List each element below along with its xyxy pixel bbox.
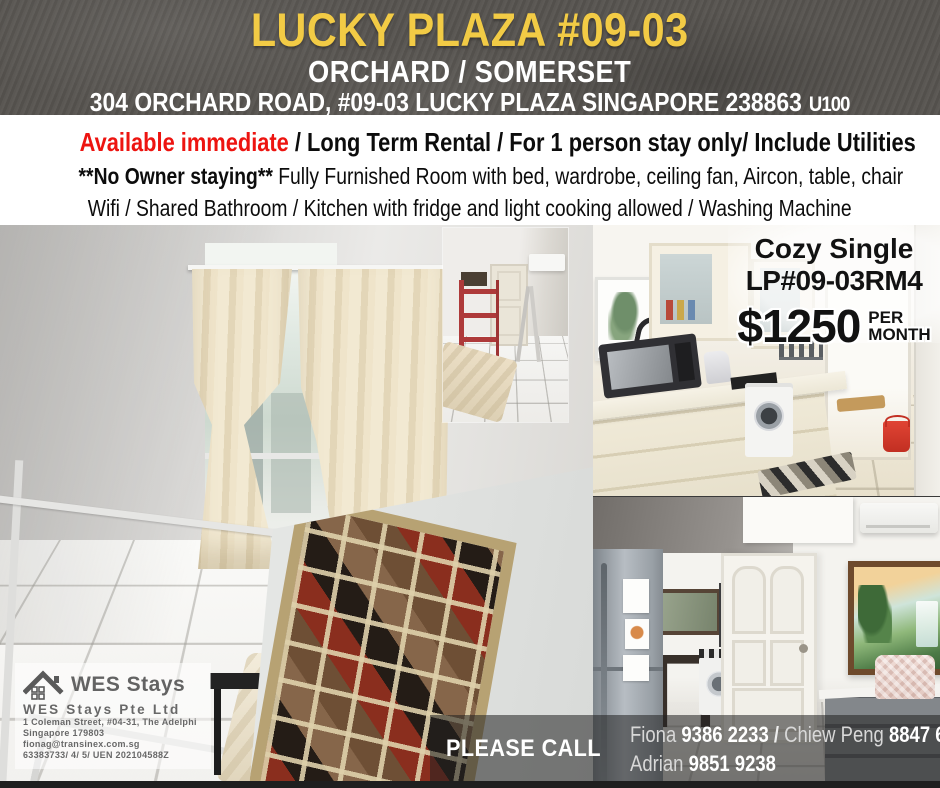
bottom-dark-strip [0,781,940,788]
fridge-note [623,655,649,681]
door-panel [497,271,521,301]
washer-drum [754,401,784,431]
contact-numbers: Fiona 9386 2233 / Chiew Peng 8847 6204 /… [630,720,940,778]
photo-kitchen: Cozy Single LP#09-03RM4 $1250 PER MONTH [593,225,940,496]
painting-waterfall [916,601,938,647]
unit-code-label: LP#09-03RM4 [728,265,940,297]
details-line-2-wrap: **No Owner staying** Fully Furnished Roo… [79,160,904,192]
kettle [703,350,732,385]
small-framed-art [655,589,721,635]
price-overlay: Cozy Single LP#09-03RM4 $1250 PER MONTH [728,225,940,343]
door-panel [732,566,766,634]
aircon-unit-icon [860,503,938,533]
price-row: $1250 PER MONTH [728,299,940,353]
details-line-1-wrap: Available immediate / Long Term Rental /… [80,124,916,160]
washing-machine [745,383,793,457]
microwave [598,333,702,399]
fridge-note [623,579,649,613]
photo-corridor-inset [443,228,568,422]
door-frame-beam [743,497,853,543]
u100-badge: U100 [809,93,850,116]
watermark-company: WES Stays Pte Ltd [23,702,203,717]
contact-phone: 9851 9238 [689,751,776,776]
microwave-panel [674,342,695,382]
painting-trees [858,585,892,643]
details-band: Available immediate / Long Term Rental /… [0,115,940,225]
watermark-email: fionag@transinex.com.sg [23,739,203,750]
side-table-leg [214,689,221,775]
rental-flyer: LUCKY PLAZA #09-03 ORCHARD / SOMERSET 30… [0,0,940,788]
pink-basket [875,655,935,699]
details-line-2: **No Owner staying** Fully Furnished Roo… [0,160,940,192]
details-line-2-rest: Fully Furnished Room with bed, wardrobe,… [273,163,903,189]
door-knob [799,644,808,653]
page-title: LUCKY PLAZA #09-03 [0,5,940,55]
details-line-1-rest: / Long Term Rental / For 1 person stay o… [289,127,916,157]
contact-name: Chiew Peng [784,722,884,747]
watermark-brand-row: WES Stays [23,669,203,701]
door-panel [497,306,521,336]
contact-phone: 9386 2233 [682,722,769,747]
aircon-unit-icon [529,254,565,271]
contact-name: Adrian [630,751,683,776]
subtitle: ORCHARD / SOMERSET [0,55,940,88]
watermark-card: WES Stays WES Stays Pte Ltd 1 Coleman St… [15,663,211,769]
cabinet-glass-pane [660,254,712,324]
room-type-label: Cozy Single [728,233,940,265]
red-bucket [883,421,910,452]
per-month-label: PER MONTH [868,309,930,343]
contact-bar: PLEASE CALL Fiona 9386 2233 / Chiew Peng… [430,715,940,782]
details-line-1: Available immediate / Long Term Rental /… [0,124,940,160]
watermark-registration: 63383733/ 4/ 5/ UEN 202104588Z [23,750,203,761]
fridge-note [625,619,649,649]
page-title-text: LUCKY PLAZA #09-03 [251,5,689,55]
microwave-door [607,345,673,390]
watermark-address-1: 1 Coleman Street, #04-31, The Adelphi [23,717,203,728]
address-text: 304 ORCHARD ROAD, #09-03 LUCKY PLAZA SIN… [90,87,802,117]
month-label: MONTH [868,326,930,343]
price-value: $1250 [737,299,860,353]
contact-name: Fiona [630,722,676,747]
watermark-brand: WES Stays [71,673,185,697]
subtitle-text: ORCHARD / SOMERSET [308,55,631,88]
availability-highlight: Available immediate [80,127,289,157]
please-call-label: PLEASE CALL [446,735,601,763]
contact-separator: / [774,722,779,747]
contact-phone: 8847 6204 [889,722,940,747]
door-panel [732,640,766,686]
no-owner-bold: **No Owner staying** [79,163,273,189]
photo-bedroom: WES Stays WES Stays Pte Ltd 1 Coleman St… [0,225,593,788]
per-label: PER [868,309,903,326]
watermark-address-2: Singapore 179803 [23,728,203,739]
header: LUCKY PLAZA #09-03 ORCHARD / SOMERSET 30… [0,0,940,115]
door-panel [770,566,804,634]
details-line-3: Wifi / Shared Bathroom / Kitchen with fr… [0,192,940,224]
photo-collage: WES Stays WES Stays Pte Ltd 1 Coleman St… [0,225,940,788]
details-line-3-text: Wifi / Shared Bathroom / Kitchen with fr… [88,192,852,224]
house-logo-icon [23,669,67,701]
